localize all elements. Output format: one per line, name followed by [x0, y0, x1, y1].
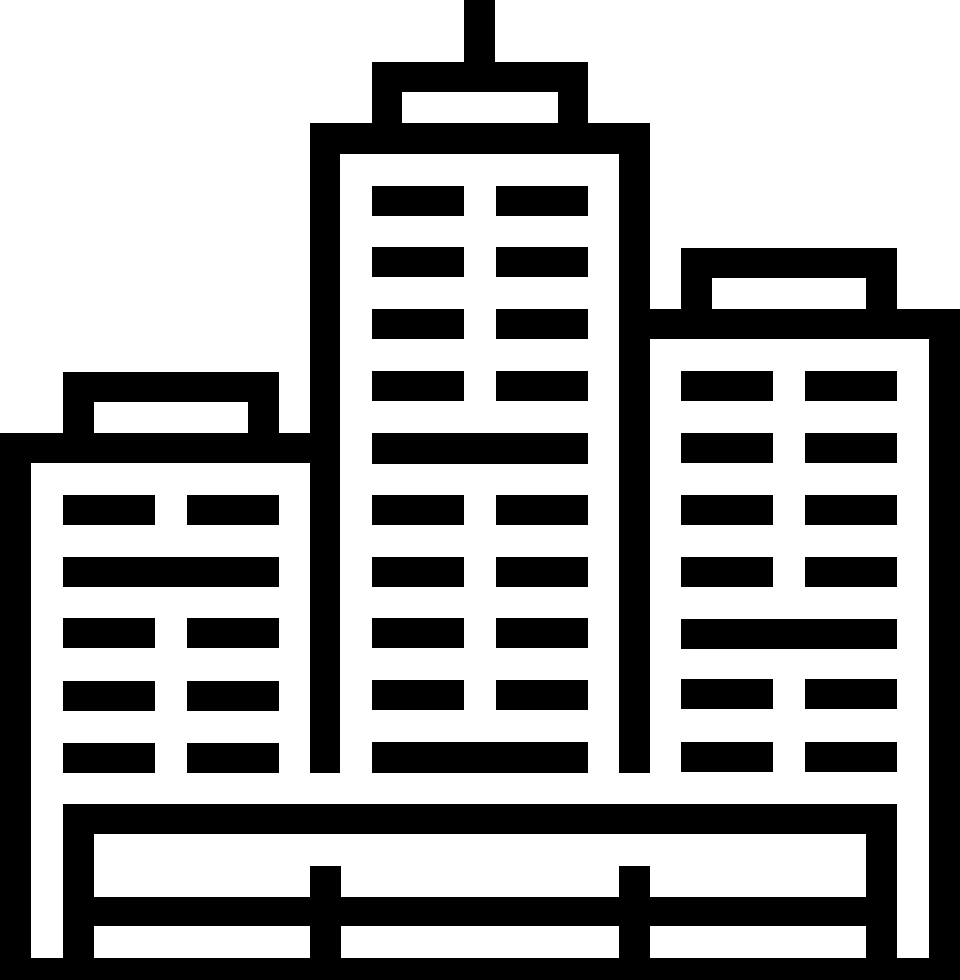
center-tower-window: [496, 186, 588, 216]
left-building-roof-bar: [0, 433, 310, 463]
left-building-window: [63, 495, 155, 525]
center-tower-window: [372, 680, 464, 710]
right-building-window: [681, 679, 773, 709]
right-building-window-band: [681, 619, 897, 649]
plaza-fence-ground-bar: [0, 958, 960, 980]
right-building-sign-left: [681, 278, 712, 309]
right-building-window: [681, 433, 773, 463]
center-tower-window: [372, 309, 464, 339]
left-building-window: [187, 681, 279, 711]
center-tower-right-wall: [619, 154, 650, 773]
plaza-fence: [0, 804, 960, 980]
right-building-window: [681, 495, 773, 525]
plaza-fence-plaza-right-post: [866, 834, 897, 958]
right-building-window: [805, 371, 897, 401]
center-tower-crown-right: [558, 92, 588, 123]
center-tower-window: [372, 618, 464, 648]
right-building-sign-top: [681, 248, 897, 278]
right-building-sign-right: [866, 278, 897, 309]
right-building-window: [805, 495, 897, 525]
left-building: [0, 372, 310, 958]
center-tower-window-band: [372, 433, 588, 464]
center-tower-window: [496, 618, 588, 648]
right-building-window: [681, 742, 773, 772]
center-tower-left-wall: [310, 154, 340, 773]
left-building-window: [187, 743, 279, 773]
center-tower-window-band: [372, 742, 588, 773]
center-tower-window: [496, 680, 588, 710]
left-building-sign-top: [63, 372, 279, 402]
left-building-sign-left: [63, 402, 94, 433]
left-building-sign-right: [248, 402, 279, 433]
left-building-window-band: [63, 557, 279, 587]
center-tower-window: [372, 495, 464, 525]
center-tower: [310, 0, 650, 773]
left-building-left-wall: [0, 463, 31, 958]
right-building-roof-bar: [650, 309, 960, 339]
right-building-window: [805, 433, 897, 463]
center-tower-window: [372, 371, 464, 401]
right-building-window: [805, 679, 897, 709]
right-building-window: [681, 557, 773, 587]
left-building-window: [63, 743, 155, 773]
center-tower-window: [372, 247, 464, 277]
city-skyline-icon: [0, 0, 960, 980]
right-building-window: [681, 371, 773, 401]
plaza-fence-plaza-top-bar: [63, 804, 897, 834]
plaza-fence-plaza-left-post: [63, 834, 94, 958]
center-tower-crown-left: [372, 92, 402, 123]
right-building-right-wall: [929, 339, 960, 958]
right-building-window: [805, 742, 897, 772]
center-tower-crown-top: [372, 62, 588, 92]
center-tower-window: [372, 557, 464, 587]
left-building-window: [187, 495, 279, 525]
center-tower-window: [496, 371, 588, 401]
left-building-window: [187, 618, 279, 648]
icon-canvas: [0, 0, 960, 980]
center-tower-window: [372, 186, 464, 216]
center-tower-window: [496, 247, 588, 277]
plaza-fence-fence-rail: [94, 897, 866, 926]
left-building-window: [63, 681, 155, 711]
left-building-window: [63, 618, 155, 648]
center-tower-roof-bar: [310, 123, 650, 154]
center-tower-window: [496, 309, 588, 339]
right-building: [650, 248, 960, 958]
center-tower-window: [496, 495, 588, 525]
right-building-window: [805, 557, 897, 587]
center-tower-window: [496, 557, 588, 587]
